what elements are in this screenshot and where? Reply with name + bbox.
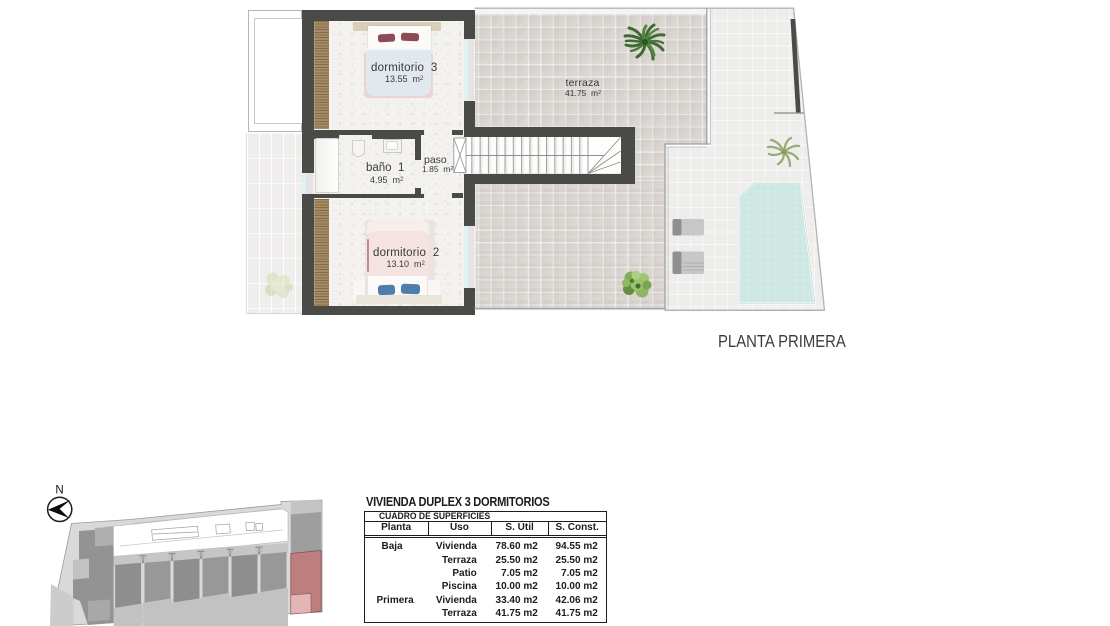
svg-text:N: N: [55, 485, 63, 497]
